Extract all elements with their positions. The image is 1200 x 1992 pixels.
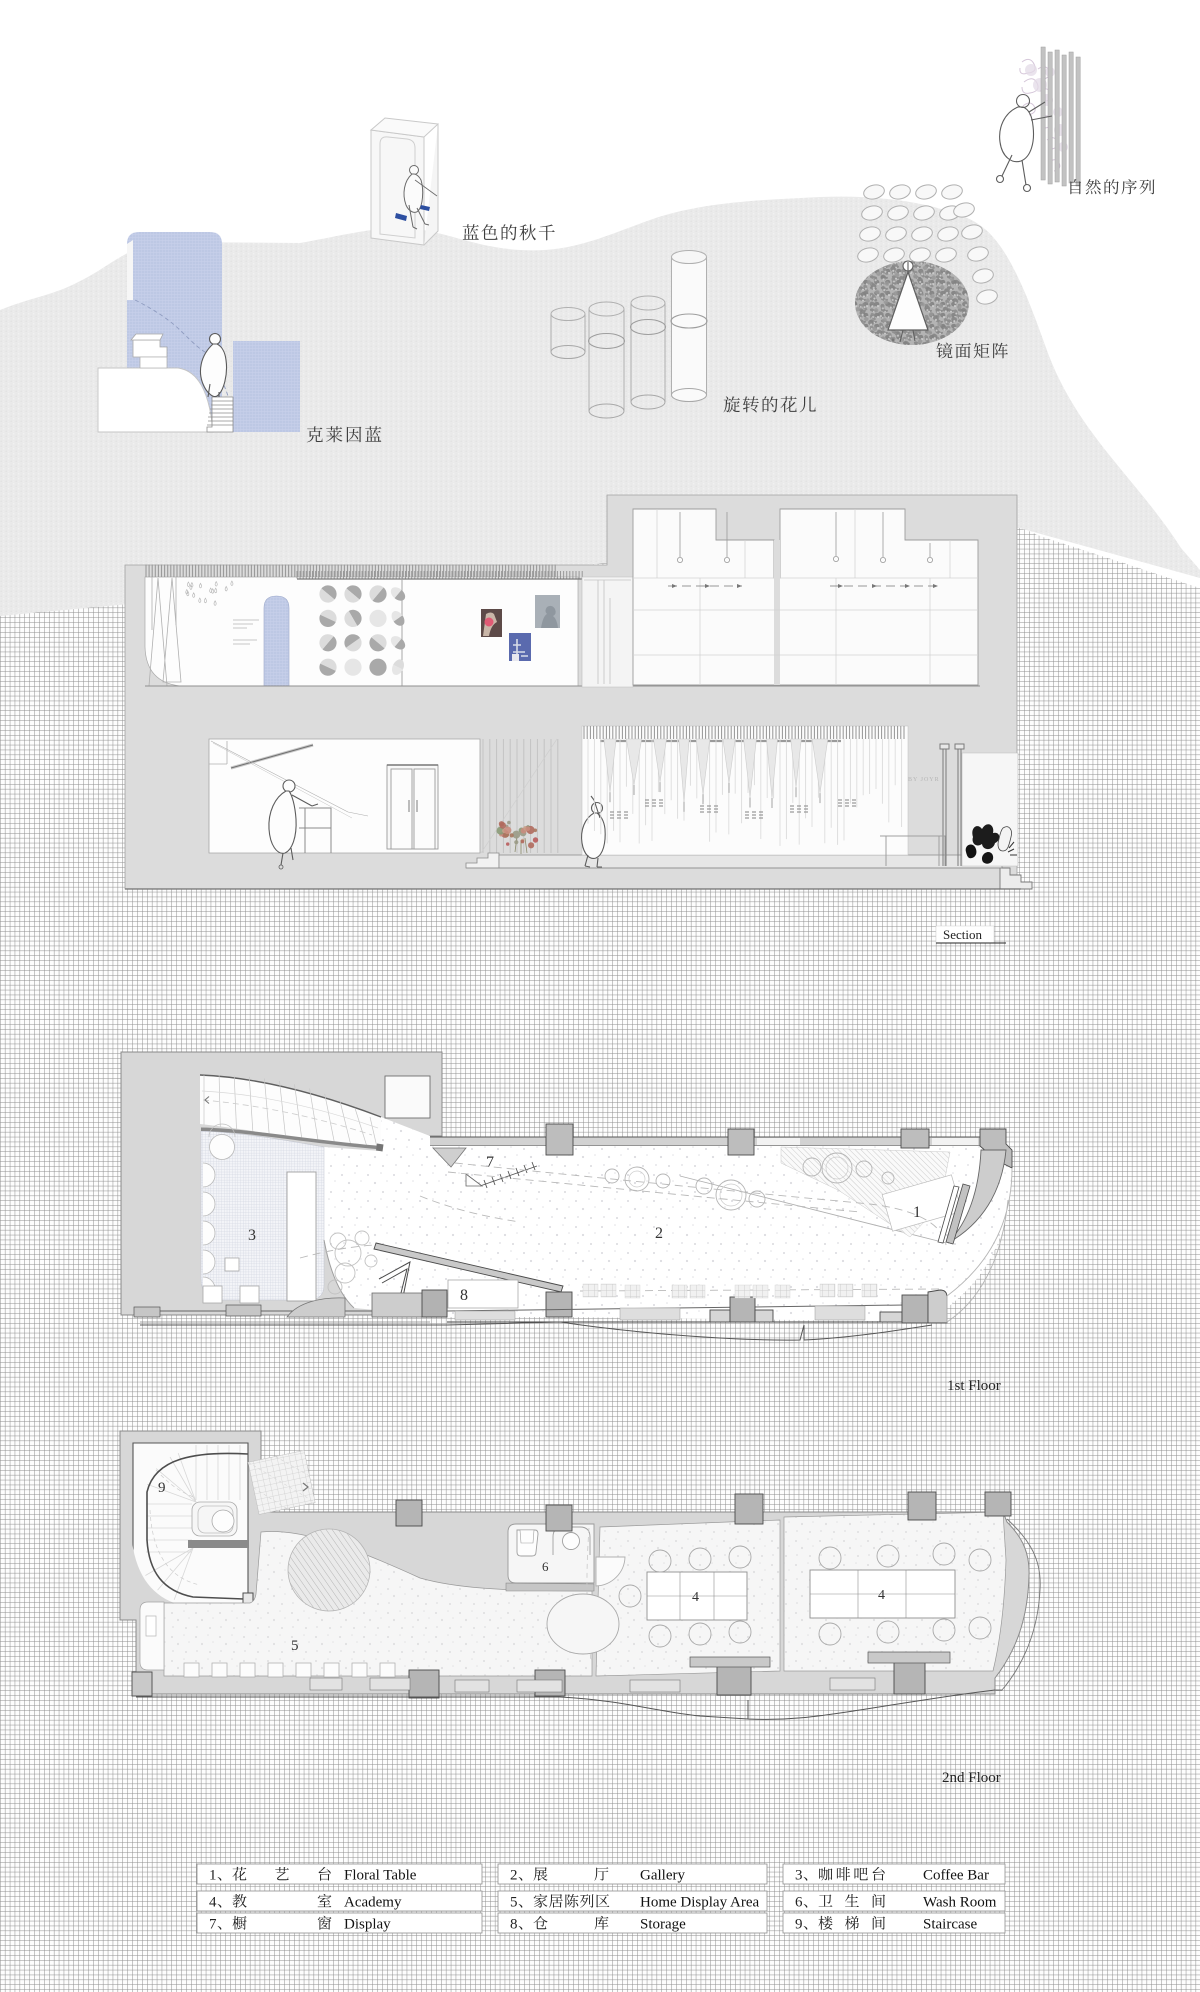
svg-text:2nd Floor: 2nd Floor — [942, 1770, 1001, 1786]
svg-text:4: 4 — [209, 1895, 217, 1911]
svg-text:1: 1 — [913, 1204, 921, 1221]
svg-text:7: 7 — [209, 1917, 217, 1933]
svg-text:BY JOYR: BY JOYR — [908, 777, 940, 783]
svg-text:Display: Display — [344, 1917, 391, 1933]
svg-text:4: 4 — [692, 1590, 699, 1605]
svg-text:4: 4 — [878, 1588, 885, 1603]
svg-text:Wash Room: Wash Room — [923, 1895, 997, 1911]
svg-text:Academy: Academy — [344, 1895, 402, 1911]
svg-text:8: 8 — [460, 1287, 468, 1304]
svg-text:Storage: Storage — [640, 1917, 686, 1933]
svg-text:7: 7 — [486, 1154, 494, 1171]
svg-text:2: 2 — [655, 1225, 663, 1242]
svg-text:3: 3 — [795, 1868, 803, 1884]
svg-text:1st Floor: 1st Floor — [947, 1378, 1001, 1394]
svg-text:Floral Table: Floral Table — [344, 1868, 417, 1884]
svg-text:Gallery: Gallery — [640, 1868, 685, 1884]
svg-text:1: 1 — [209, 1868, 217, 1884]
svg-text:3: 3 — [248, 1227, 256, 1244]
svg-text:Coffee Bar: Coffee Bar — [923, 1868, 989, 1884]
svg-text:9: 9 — [795, 1917, 803, 1933]
svg-text:5: 5 — [510, 1895, 518, 1911]
svg-text:9: 9 — [158, 1480, 166, 1496]
svg-text:Section: Section — [943, 927, 982, 942]
svg-text:2: 2 — [510, 1868, 518, 1884]
svg-text:Staircase: Staircase — [923, 1917, 977, 1933]
svg-text:8: 8 — [510, 1917, 518, 1933]
svg-text:5: 5 — [291, 1638, 299, 1654]
svg-text:6: 6 — [542, 1559, 549, 1574]
svg-text:Home Display Area: Home Display Area — [640, 1895, 759, 1911]
svg-text:6: 6 — [795, 1895, 803, 1911]
